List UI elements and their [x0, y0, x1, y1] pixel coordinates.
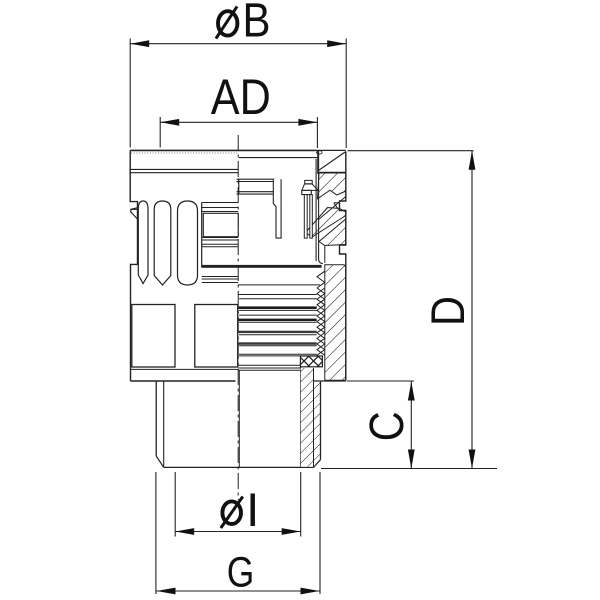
svg-text:C: C	[361, 411, 414, 441]
svg-text:I: I	[246, 484, 259, 537]
svg-text:D: D	[421, 296, 474, 326]
svg-text:B: B	[243, 0, 271, 48]
svg-text:AD: AD	[211, 69, 271, 125]
svg-text:G: G	[227, 549, 255, 597]
